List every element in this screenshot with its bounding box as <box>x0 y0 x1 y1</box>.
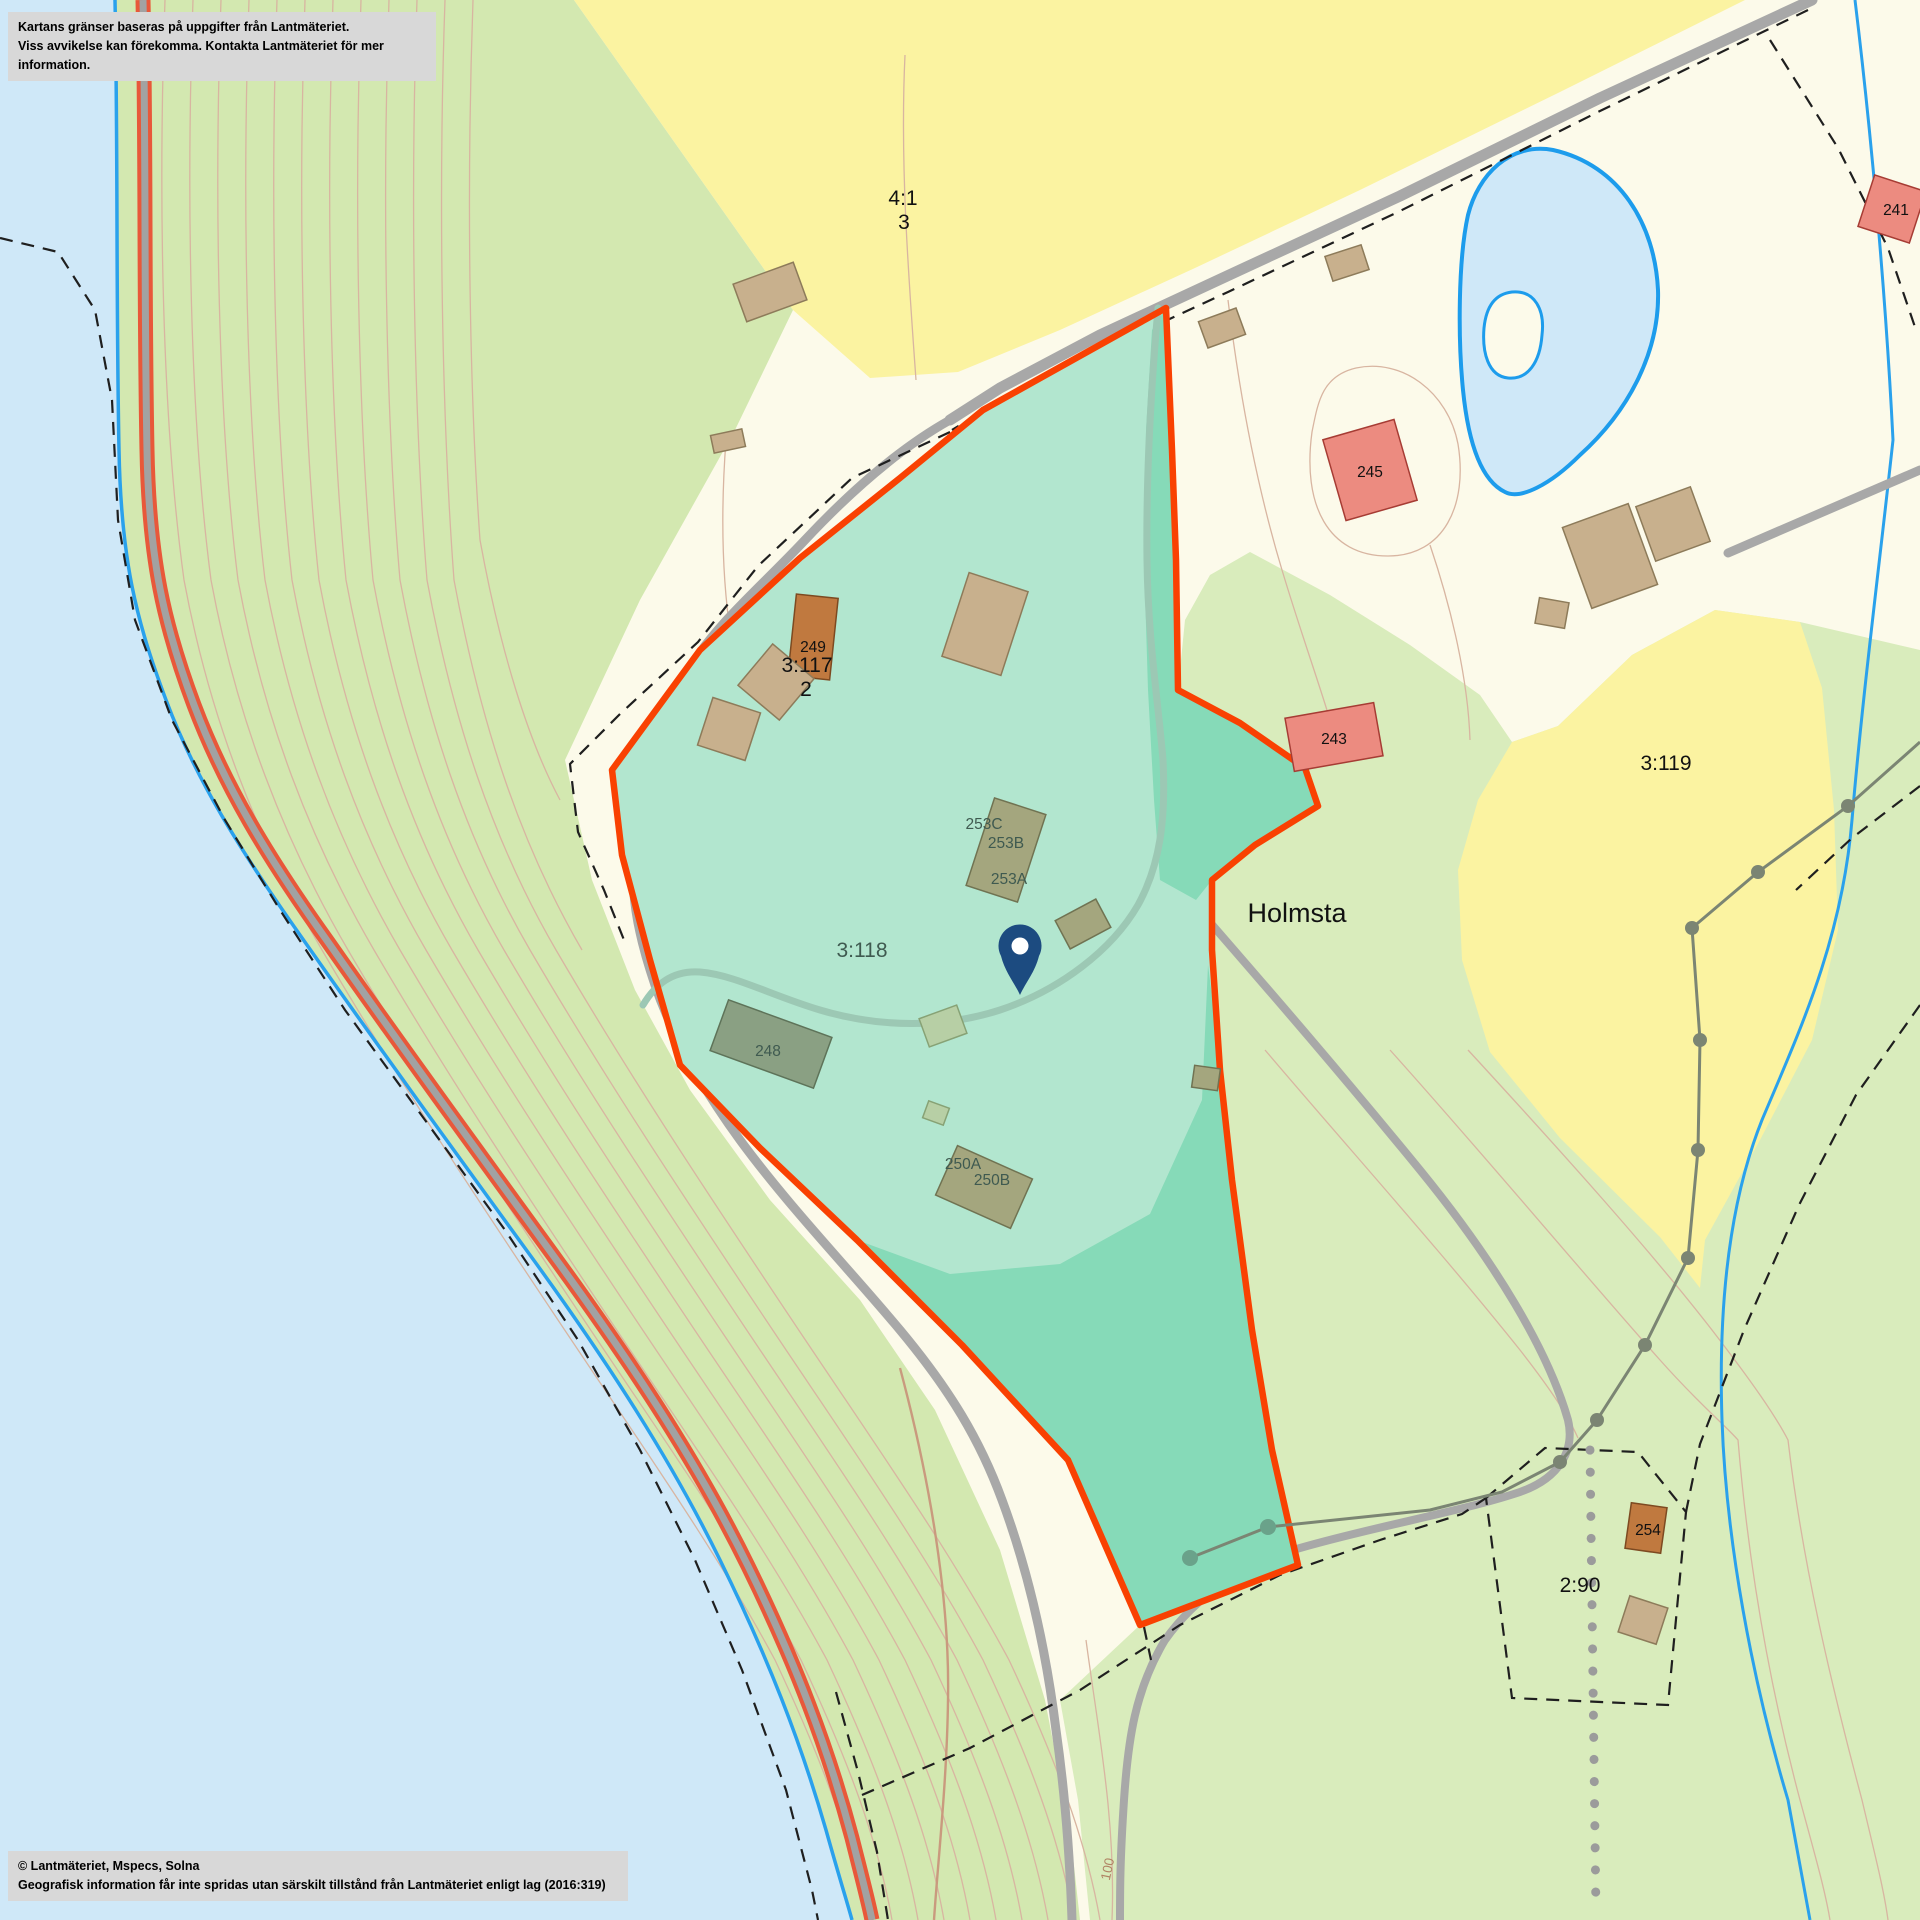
building-label-253c: 253C <box>965 816 1002 833</box>
place-label-holmsta: Holmsta <box>1247 898 1347 928</box>
disclaimer-line-2: Viss avvikelse kan förekomma. Kontakta L… <box>18 37 426 75</box>
parcel-label-2-90: 2:90 <box>1560 1574 1601 1597</box>
map-canvas[interactable]: 4:1 3 249 3:117 2 253C 253B 253A 3:118 2… <box>0 0 1920 1920</box>
parcel-label-3-117: 3:117 <box>782 654 833 677</box>
copyright-line-2: Geografisk information får inte spridas … <box>18 1876 618 1895</box>
parcel-label-4-1-sub: 3 <box>898 211 910 234</box>
pond-island <box>1484 292 1543 378</box>
disclaimer-line-1: Kartans gränser baseras på uppgifter frå… <box>18 18 426 37</box>
building-label-245: 245 <box>1357 464 1383 481</box>
building-label-253b: 253B <box>988 835 1024 852</box>
copyright-line-1: © Lantmäteriet, Mspecs, Solna <box>18 1857 618 1876</box>
building-label-250b: 250B <box>974 1172 1010 1189</box>
building-label-248: 248 <box>755 1043 781 1060</box>
building-label-243: 243 <box>1321 731 1347 748</box>
building-olive <box>1192 1065 1221 1090</box>
parcel-label-4-1: 4:1 <box>888 187 917 210</box>
map-copyright-notice: © Lantmäteriet, Mspecs, Solna Geografisk… <box>8 1851 628 1901</box>
map-disclaimer-top: Kartans gränser baseras på uppgifter frå… <box>8 12 436 81</box>
building-label-253a: 253A <box>991 871 1028 888</box>
parcel-label-3-117-sub: 2 <box>800 678 812 701</box>
building-label-254: 254 <box>1635 1522 1661 1539</box>
building-label-250a: 250A <box>945 1156 982 1173</box>
building-tan <box>1535 598 1569 629</box>
parcel-label-3-119: 3:119 <box>1641 752 1692 775</box>
building-label-241: 241 <box>1883 202 1909 219</box>
parcel-label-3-118: 3:118 <box>837 939 888 962</box>
